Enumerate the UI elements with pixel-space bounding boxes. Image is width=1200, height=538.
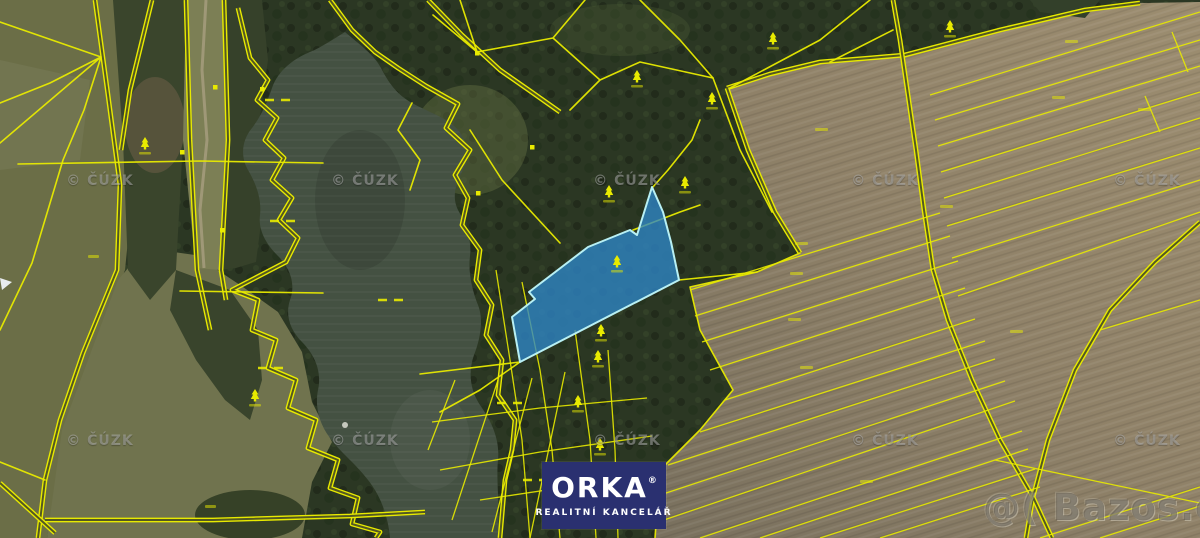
building-icon	[475, 51, 480, 56]
building-icon	[220, 228, 225, 233]
cuzk-watermark: © ČÚZK	[593, 173, 661, 189]
registered-trademark: ®	[648, 476, 657, 486]
cuzk-watermark: © ČÚZK	[593, 433, 661, 449]
building-icon	[530, 145, 535, 150]
building-icon	[476, 191, 481, 196]
building-icon	[260, 87, 265, 92]
cadastral-map-image[interactable]: © ČÚZK © ČÚZK © ČÚZK © ČÚZK © ČÚZK © ČÚZ…	[0, 0, 1200, 538]
bazos-watermark: @( Bazos.cz	[983, 486, 1200, 529]
orka-logo-subtitle: REALITNÍ KANCELÁŘ	[535, 508, 672, 518]
cuzk-watermark: © ČÚZK	[66, 173, 134, 189]
cuzk-watermark: © ČÚZK	[1113, 173, 1181, 189]
building-icon	[180, 150, 185, 155]
cuzk-watermark: © ČÚZK	[1113, 433, 1181, 449]
cuzk-watermark: © ČÚZK	[66, 433, 134, 449]
map-canvas	[0, 0, 1200, 538]
cuzk-watermark: © ČÚZK	[331, 433, 399, 449]
building-icon	[213, 85, 218, 90]
boat-dot	[342, 422, 348, 428]
cuzk-watermark: © ČÚZK	[331, 173, 399, 189]
orka-logo: ORKA® REALITNÍ KANCELÁŘ	[542, 462, 666, 529]
cuzk-watermark: © ČÚZK	[851, 173, 919, 189]
cuzk-watermark: © ČÚZK	[851, 433, 919, 449]
orka-logo-brand: ORKA®	[551, 474, 657, 502]
